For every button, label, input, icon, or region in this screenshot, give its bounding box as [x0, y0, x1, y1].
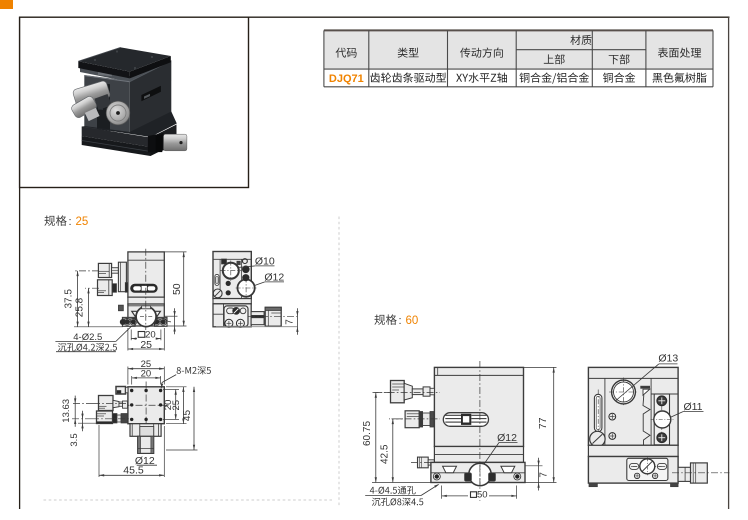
svg-text:25: 25 [171, 400, 182, 411]
svg-text:7: 7 [163, 319, 174, 324]
svg-text:20: 20 [141, 369, 152, 380]
svg-text:25.8: 25.8 [74, 297, 85, 317]
svg-text:25: 25 [76, 216, 89, 228]
svg-text::: : [399, 315, 402, 327]
svg-text:50: 50 [477, 490, 488, 501]
svg-text:37.5: 37.5 [63, 289, 74, 309]
svg-text:DJQ71: DJQ71 [329, 73, 364, 85]
svg-text:7: 7 [285, 319, 296, 325]
svg-text:7: 7 [538, 472, 549, 478]
svg-text:45: 45 [182, 410, 193, 422]
svg-text:60.75: 60.75 [362, 421, 373, 446]
svg-text:25: 25 [140, 339, 152, 351]
svg-text:3.5: 3.5 [69, 433, 80, 446]
svg-text:60: 60 [406, 315, 419, 327]
svg-text:13.63: 13.63 [61, 399, 72, 423]
svg-text:Ø12: Ø12 [497, 432, 517, 444]
svg-text:50: 50 [171, 283, 183, 295]
svg-text:42.5: 42.5 [379, 444, 390, 464]
svg-text:77: 77 [537, 417, 549, 429]
svg-text::: : [69, 216, 72, 228]
svg-text:Ø13: Ø13 [658, 353, 678, 365]
svg-text:45.5: 45.5 [123, 465, 144, 477]
